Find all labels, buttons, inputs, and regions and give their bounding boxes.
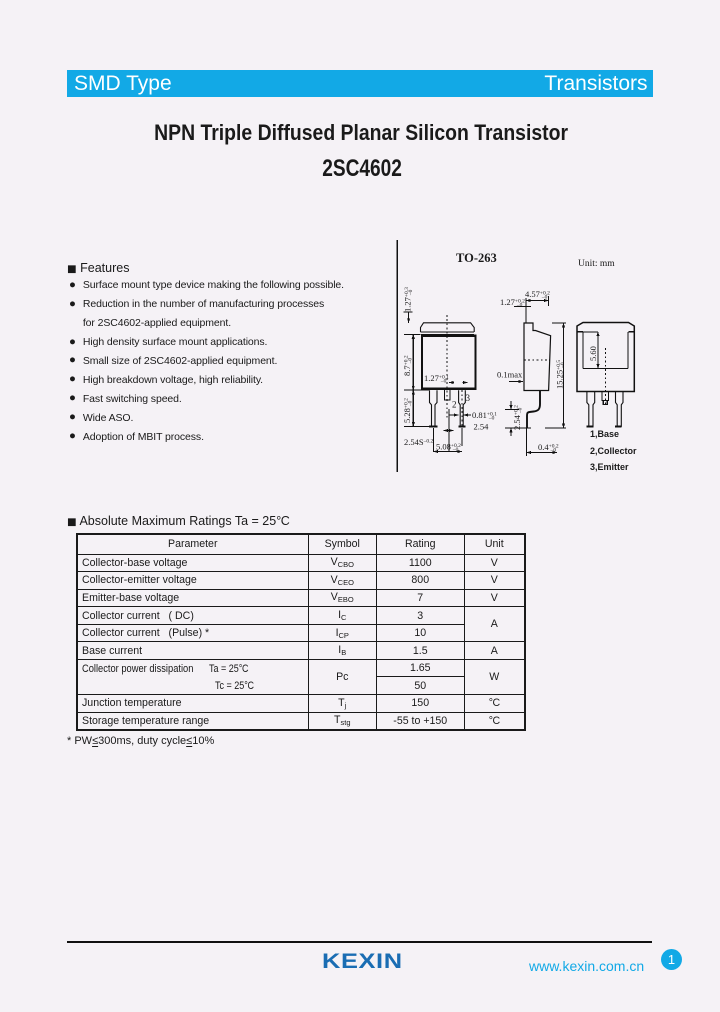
svg-text:0.81+0.1–0: 0.81+0.1–0 xyxy=(472,410,497,422)
svg-text:TO-263: TO-263 xyxy=(456,251,497,265)
svg-text:0.4+0.2–0: 0.4+0.2–0 xyxy=(538,442,559,454)
svg-text:1,Base: 1,Base xyxy=(590,429,619,439)
svg-text:2.54S–0.2: 2.54S–0.2 xyxy=(404,437,433,447)
svg-text:3,Emitter: 3,Emitter xyxy=(590,462,629,472)
svg-text:Unit: mm: Unit: mm xyxy=(578,259,615,269)
svg-text:5.28+0.2–0: 5.28+0.2–0 xyxy=(402,398,414,423)
svg-text:2.54: 2.54 xyxy=(474,422,490,432)
svg-text:2: 2 xyxy=(452,400,457,410)
svg-text:3: 3 xyxy=(466,393,471,403)
svg-text:5.60: 5.60 xyxy=(588,346,598,361)
svg-text:8.7+0.2–0: 8.7+0.2–0 xyxy=(402,355,414,376)
svg-text:2,Collector: 2,Collector xyxy=(590,446,637,456)
svg-text:1.27+0.3–0: 1.27+0.3–0 xyxy=(403,287,415,312)
svg-text:2.54+0.2–0: 2.54+0.2–0 xyxy=(512,405,524,430)
svg-text:4.57+0.2–0: 4.57+0.2–0 xyxy=(525,289,550,301)
svg-text:0.1max: 0.1max xyxy=(497,370,523,380)
svg-text:1.27+0.1–0: 1.27+0.1–0 xyxy=(424,373,449,385)
svg-text:15.25+0.5–0: 15.25+0.5–0 xyxy=(555,360,567,389)
